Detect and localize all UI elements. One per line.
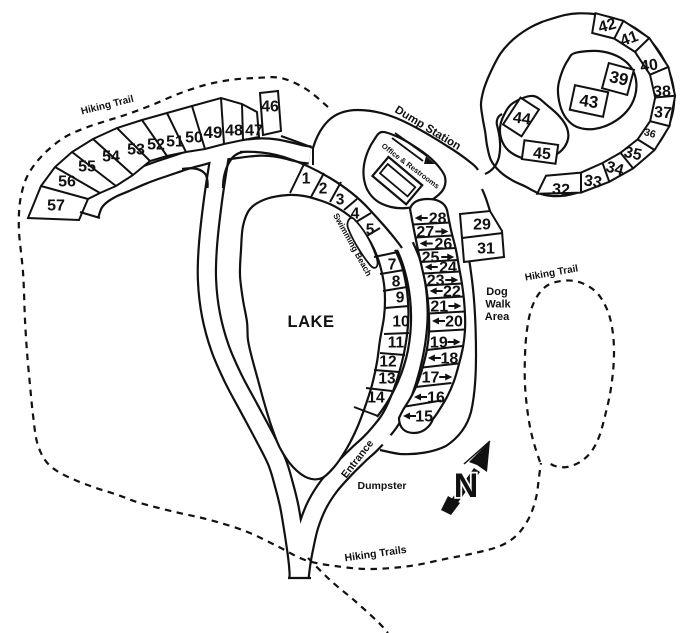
svg-text:38: 38 xyxy=(653,84,671,101)
svg-text:45: 45 xyxy=(532,145,551,163)
svg-text:9: 9 xyxy=(396,289,405,306)
svg-text:LAKE: LAKE xyxy=(288,313,335,331)
svg-text:7: 7 xyxy=(388,256,397,273)
svg-text:Area: Area xyxy=(485,311,510,323)
svg-text:Dumpster: Dumpster xyxy=(357,480,406,492)
svg-text:55: 55 xyxy=(78,159,96,176)
svg-text:Walk: Walk xyxy=(485,299,511,311)
svg-text:29: 29 xyxy=(473,217,491,234)
svg-text:46: 46 xyxy=(261,99,279,116)
svg-text:31: 31 xyxy=(477,241,495,258)
svg-text:13: 13 xyxy=(378,370,396,387)
svg-text:52: 52 xyxy=(147,137,165,154)
svg-text:25: 25 xyxy=(422,250,440,267)
svg-text:32: 32 xyxy=(552,181,571,199)
svg-text:48: 48 xyxy=(225,123,243,140)
svg-text:20: 20 xyxy=(445,314,463,331)
svg-text:47: 47 xyxy=(245,123,263,140)
svg-text:N: N xyxy=(454,467,479,505)
svg-text:53: 53 xyxy=(127,142,145,159)
svg-text:14: 14 xyxy=(367,389,385,406)
svg-text:51: 51 xyxy=(166,134,184,151)
svg-text:50: 50 xyxy=(185,130,203,147)
svg-text:43: 43 xyxy=(578,91,599,112)
svg-text:15: 15 xyxy=(415,409,433,426)
svg-text:3: 3 xyxy=(336,191,345,208)
svg-text:35: 35 xyxy=(622,144,643,164)
svg-text:1: 1 xyxy=(302,170,311,187)
svg-text:54: 54 xyxy=(102,149,120,166)
svg-text:11: 11 xyxy=(388,334,405,351)
svg-text:17: 17 xyxy=(422,370,440,387)
svg-text:37: 37 xyxy=(653,104,672,122)
svg-text:56: 56 xyxy=(58,174,76,191)
svg-text:39: 39 xyxy=(608,67,630,90)
svg-text:33: 33 xyxy=(583,172,603,191)
svg-text:16: 16 xyxy=(427,390,445,407)
svg-text:8: 8 xyxy=(392,273,401,290)
svg-text:4: 4 xyxy=(351,205,360,222)
svg-text:44: 44 xyxy=(512,109,532,128)
svg-text:23: 23 xyxy=(427,273,445,290)
svg-text:27: 27 xyxy=(416,224,434,241)
svg-text:19: 19 xyxy=(430,335,448,352)
svg-text:40: 40 xyxy=(639,56,659,75)
svg-text:57: 57 xyxy=(47,198,65,215)
svg-text:10: 10 xyxy=(392,313,409,330)
svg-text:2: 2 xyxy=(319,180,328,197)
svg-text:18: 18 xyxy=(441,351,459,368)
svg-text:5: 5 xyxy=(366,221,375,238)
svg-text:12: 12 xyxy=(379,353,396,370)
svg-text:Dog: Dog xyxy=(486,286,507,298)
svg-text:49: 49 xyxy=(204,123,223,142)
